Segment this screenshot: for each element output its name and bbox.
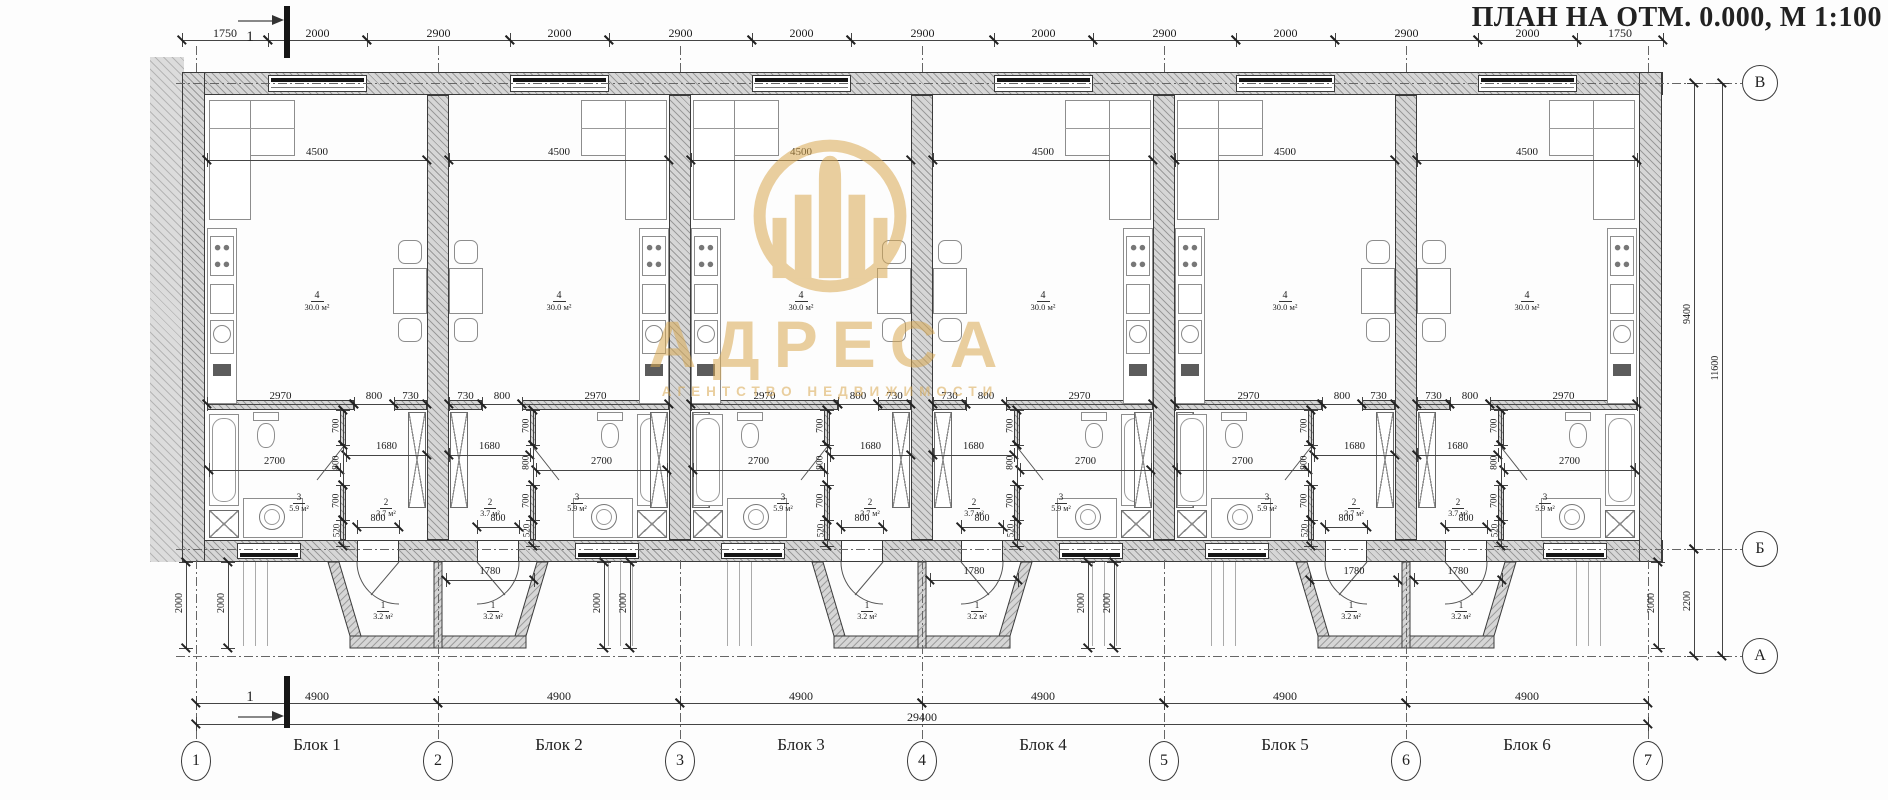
dining-table [393,268,427,314]
left-end-strip [150,57,184,562]
porch-room-number: 1 [1345,601,1358,612]
grid-line [438,46,439,72]
window-sash [240,553,298,557]
dining-table [1361,268,1395,314]
dim-line [1311,445,1312,485]
dim-label: 4500 [514,147,604,158]
grid-line [680,46,681,72]
dim-line [446,580,534,581]
toilet-bowl [1569,423,1587,448]
living-room-area: 30.0 м² [771,303,831,312]
porch-front-wall [350,636,434,648]
porch-room-label: 13.2 м² [463,595,523,621]
window [1543,543,1607,559]
chair [882,240,906,264]
porch-room-label: 13.2 м² [947,595,1007,621]
window-sash [513,78,606,82]
sofa-cushion-line [693,128,779,129]
dim-line [1020,470,1151,471]
window [237,543,301,559]
dim-label: 1780 [1309,567,1399,578]
watermark: АДРЕСА АГЕНТСТВО НЕДВИЖИМОСТИ [530,128,1130,399]
toilet-bowl [1085,423,1103,448]
section-mark-label: 1 [240,30,260,45]
dim-line [933,455,1014,456]
dim-line [1414,580,1502,581]
hall-room-number: 2 [380,498,393,509]
kitchen-mat [697,364,715,376]
block-label: Блок 2 [499,735,619,755]
chair [454,240,478,264]
dim-line [1322,404,1362,405]
grid-line [1164,46,1165,72]
dim-line [1175,160,1395,161]
dim-label: 2000 [593,563,603,643]
window-sash [997,78,1090,82]
toilet-tank [1081,412,1107,421]
dim-line [533,445,534,485]
bath-room-area: 5.9 м² [753,505,813,514]
kitchen-sink-bowl [213,325,231,343]
axis-bubble: А [1742,638,1778,674]
dim-label: 2000 [999,27,1089,39]
sofa-cushion-line [209,128,295,129]
toilet-tank [597,412,623,421]
porch-room-label: 13.2 м² [353,595,413,621]
kitchen-mat [1181,364,1199,376]
bath-room-label: 35.9 м² [269,487,329,513]
toilet-bowl [257,423,275,448]
dim-line [346,455,427,456]
window-sash-line [513,87,606,88]
chair [1422,318,1446,342]
sofa-cushion-line [1177,128,1263,129]
fridge [694,284,718,314]
hall-room-number: 2 [1452,498,1465,509]
dim-label: 2900 [1120,27,1210,39]
bath-room-label: 35.9 м² [1515,487,1575,513]
porch-room-label: 13.2 м² [1321,595,1381,621]
kitchen-sink-bowl [697,325,715,343]
step-line [267,562,268,646]
dim-line [268,40,367,41]
step-line [1092,562,1093,646]
hall-room-number: 2 [968,498,981,509]
block-label: Блок 1 [257,735,377,755]
dim-line [1722,83,1723,656]
dim-line [630,562,631,648]
dim-line [604,562,605,648]
washing-machine [209,510,239,538]
living-room-label: 430.0 м² [1013,285,1073,312]
dim-label: 2900 [1362,27,1452,39]
toilet-tank [1565,412,1591,421]
duct-chase [650,412,668,508]
dim-label: 2000 [619,563,629,643]
stove [210,236,234,276]
dim-label: 1750 [1575,27,1665,39]
dim-label: 2970 [720,391,810,402]
window-sash [1062,553,1120,557]
porch-room-number: 1 [487,601,500,612]
dim-label: 2700 [1198,457,1288,468]
dim-label: 4500 [1240,147,1330,158]
dim-line [510,40,609,41]
dim-line [1236,40,1335,41]
living-room-number: 4 [1279,290,1292,302]
porch-room-area: 3.2 м² [1321,613,1381,622]
living-room-label: 430.0 м² [1497,285,1557,312]
hall-room-number: 2 [484,498,497,509]
dim-label: 2970 [236,391,326,402]
hall-room-number: 2 [1348,498,1361,509]
dim-line [209,470,340,471]
grid-bubble: 4 [907,741,937,781]
porch-room-area: 3.2 м² [837,613,897,622]
washing-machine [693,510,723,538]
porch-room-number: 1 [971,601,984,612]
window-sash [1546,553,1604,557]
dim-label: 730 [1389,391,1479,402]
kitchen-mat [213,364,231,376]
dim-label: 2000 [1483,27,1573,39]
bath-room-label: 35.9 м² [1237,487,1297,513]
stove [1178,236,1202,276]
grid-line [438,560,439,740]
section-mark-label: 1 [240,690,260,705]
dim-line [752,40,851,41]
grid-bubble: 1 [181,741,211,781]
step-line [739,562,740,646]
bath-room-label: 35.9 м² [547,487,607,513]
fridge [210,284,234,314]
dim-line [438,703,680,704]
dim-line [228,562,229,648]
dim-line [930,580,1018,581]
dim-line [354,404,394,405]
dim-line [343,520,344,546]
entrance-door-leaf [371,562,399,595]
dim-label: 1680 [342,442,432,453]
porch-room-area: 3.2 м² [947,613,1007,622]
dim-line [482,404,522,405]
toilet-tank [737,412,763,421]
door-opening [961,541,1003,561]
window [1059,543,1123,559]
living-room-number: 4 [1521,290,1534,302]
washing-machine [1121,510,1151,538]
dim-line [1445,527,1487,528]
dim-label: 2970 [1204,391,1294,402]
living-room-area: 30.0 м² [1013,303,1073,312]
dim-label: 4900 [1482,690,1572,702]
bath-room-number: 3 [571,493,584,504]
bath-room-area: 5.9 м² [1031,505,1091,514]
block-label: Блок 6 [1467,735,1587,755]
dim-line [1311,520,1312,546]
kitchen-mat [1613,364,1631,376]
chair [1366,240,1390,264]
dim-label: 2000 [1077,563,1087,643]
grid-line [1648,46,1649,72]
dim-line [533,410,534,445]
porch-front-wall [1318,636,1402,648]
duct-chase [1134,412,1152,508]
exterior-bottom-wall [182,540,1663,562]
dim-label: 2700 [1041,457,1131,468]
dim-line [878,404,911,405]
grid-line [1406,560,1407,740]
dim-line [1314,455,1395,456]
dim-label: 2000 [1241,27,1331,39]
dim-label: 2970 [1035,391,1125,402]
living-room-area: 30.0 м² [1497,303,1557,312]
dim-line [1406,703,1648,704]
dim-line [536,470,667,471]
dim-label: 4900 [998,690,1088,702]
dim-line [966,404,1006,405]
dim-label: 520 [1301,491,1310,571]
dim-label: 2900 [636,27,726,39]
dim-label: 9400 [1683,274,1693,354]
toilet-bowl [1225,423,1243,448]
grid-bubble: 7 [1633,741,1663,781]
fridge [1126,284,1150,314]
dim-line [933,160,1153,161]
dim-line [1310,580,1398,581]
dim-line [343,485,344,520]
door-opening [1325,541,1367,561]
chair [454,318,478,342]
grid-line [196,560,197,740]
dining-table [449,268,483,314]
step-line [1235,562,1236,646]
window-sash-line [1481,87,1574,88]
dim-label: 730 [421,391,511,402]
dim-line [994,40,1093,41]
dim-label: 2700 [557,457,647,468]
dim-line [343,445,344,485]
entrance-door-leaf [855,562,883,595]
bath-room-label: 35.9 м² [753,487,813,513]
door-opening [841,541,883,561]
dim-line [394,404,427,405]
dim-line [207,160,427,161]
dim-line [1362,404,1395,405]
toilet-tank [253,412,279,421]
window-sash [578,553,636,557]
exterior-left-wall [182,72,205,562]
chair [938,318,962,342]
step-line [1116,562,1117,646]
porch-front-wall [834,636,918,648]
grid-line [1164,560,1165,740]
step-line [1211,562,1212,646]
step-line [608,562,609,646]
porch-room-area: 3.2 м² [1431,613,1491,622]
living-room-number: 4 [311,290,324,302]
bath-room-area: 5.9 м² [1515,505,1575,514]
dim-line [609,40,752,41]
dim-label: 2000 [175,563,185,643]
dim-label: 2000 [1103,563,1113,643]
bath-room-number: 3 [293,493,306,504]
step-line [632,562,633,646]
dim-line [1490,404,1637,405]
window-sash [755,78,848,82]
chair [1366,318,1390,342]
dim-line [1478,40,1577,41]
dim-label: 4900 [514,690,604,702]
living-room-label: 430.0 м² [287,285,347,312]
dim-label: 4900 [756,690,846,702]
step-line [1588,562,1589,646]
dim-label: 1680 [445,442,535,453]
block-label: Блок 3 [741,735,861,755]
dim-line [1501,410,1502,445]
living-room-area: 30.0 м² [1255,303,1315,312]
dim-line [1417,160,1637,161]
living-room-label: 430.0 м² [1255,285,1315,312]
dim-line [449,404,482,405]
dim-line [1658,562,1659,648]
watermark-name: АДРЕСА [530,311,1130,377]
toilet-tank [1221,412,1247,421]
dim-label: 2000 [1647,563,1657,643]
axis-line-b [176,549,1742,550]
dim-line [827,445,828,485]
dim-line [1017,445,1018,485]
dim-line [1164,703,1406,704]
block-label: Блок 4 [983,735,1103,755]
porch-room-area: 3.2 м² [353,613,413,622]
porch-room-label: 13.2 м² [837,595,897,621]
kitchen-sink-bowl [1129,325,1147,343]
dim-line [827,485,828,520]
dim-label: 1680 [1310,442,1400,453]
bath-room-number: 3 [1261,493,1274,504]
dim-line [196,703,438,704]
stove [694,236,718,276]
hall-room-number: 2 [864,498,877,509]
dim-label: 2000 [757,27,847,39]
chair [398,240,422,264]
grid-line [680,560,681,740]
window-sash-line [997,87,1090,88]
bath-room-number: 3 [777,493,790,504]
floor-plan-canvas: ПЛАН НА ОТМ. 0.000, М 1:100 АДРЕСА АГЕНТ… [0,0,1888,800]
dim-label: 1780 [445,567,535,578]
section-mark-bar [284,6,290,58]
washing-machine [1605,510,1635,538]
block-label: Блок 5 [1225,735,1345,755]
window-sash [271,78,364,82]
dim-line [1501,445,1502,485]
door-opening [1445,541,1487,561]
dim-line [841,527,883,528]
dim-label: 520 [523,491,532,571]
dim-label: 520 [817,491,826,571]
axis-line-v [176,83,1742,84]
dim-line [533,485,534,520]
chair [398,318,422,342]
bath-room-number: 3 [1055,493,1068,504]
dim-line [1017,520,1018,546]
sofa-cushion-line [1549,128,1635,129]
chair [1422,240,1446,264]
dim-line [1311,410,1312,445]
fridge [642,284,666,314]
chair [938,240,962,264]
dim-label: 520 [1007,491,1016,571]
bath-room-number: 3 [1539,493,1552,504]
washing-machine [637,510,667,538]
bath-room-area: 5.9 м² [547,505,607,514]
dim-line [851,40,994,41]
window-sash-line [755,87,848,88]
dim-label: 2200 [1683,561,1693,641]
dim-label: 2700 [1525,457,1615,468]
dim-line [922,703,1164,704]
dim-line [680,703,922,704]
dim-line [1504,470,1635,471]
porch-room-number: 1 [377,601,390,612]
dim-label: 2970 [551,391,641,402]
step-line [243,562,244,646]
step-line [1223,562,1224,646]
stove [1610,236,1634,276]
dim-label: 29400 [877,711,967,723]
section-arrow-icon [272,15,284,25]
axis-bubble: Б [1742,531,1778,567]
dim-label: 4500 [756,147,846,158]
toilet-bowl [601,423,619,448]
dim-label: 2970 [1519,391,1609,402]
grid-line [196,46,197,72]
dim-line [522,404,669,405]
kitchen-mat [645,364,663,376]
section-mark-bar [284,676,290,728]
window-sash [1239,78,1332,82]
dim-line [1325,527,1367,528]
dim-line [1088,562,1089,648]
dim-line [933,404,966,405]
stove [642,236,666,276]
dim-line [1017,410,1018,445]
stove [1126,236,1150,276]
washing-machine [1177,510,1207,538]
dim-line [1577,40,1663,41]
grid-bubble: 5 [1149,741,1179,781]
window-sash [1208,553,1266,557]
porch-room-number: 1 [861,601,874,612]
step-line [1600,562,1601,646]
living-room-area: 30.0 м² [529,303,589,312]
kitchen-mat [1129,364,1147,376]
dim-label: 11600 [1711,328,1721,408]
dim-line [1417,404,1450,405]
dim-line [357,527,399,528]
dim-line [367,40,510,41]
dining-table [933,268,967,314]
dim-line [693,470,824,471]
dim-line [1335,40,1478,41]
dim-label: 1780 [1413,567,1503,578]
step-line [255,562,256,646]
porch-front-wall [442,636,526,648]
section-arrow-icon [272,711,284,721]
dim-line [1450,404,1490,405]
